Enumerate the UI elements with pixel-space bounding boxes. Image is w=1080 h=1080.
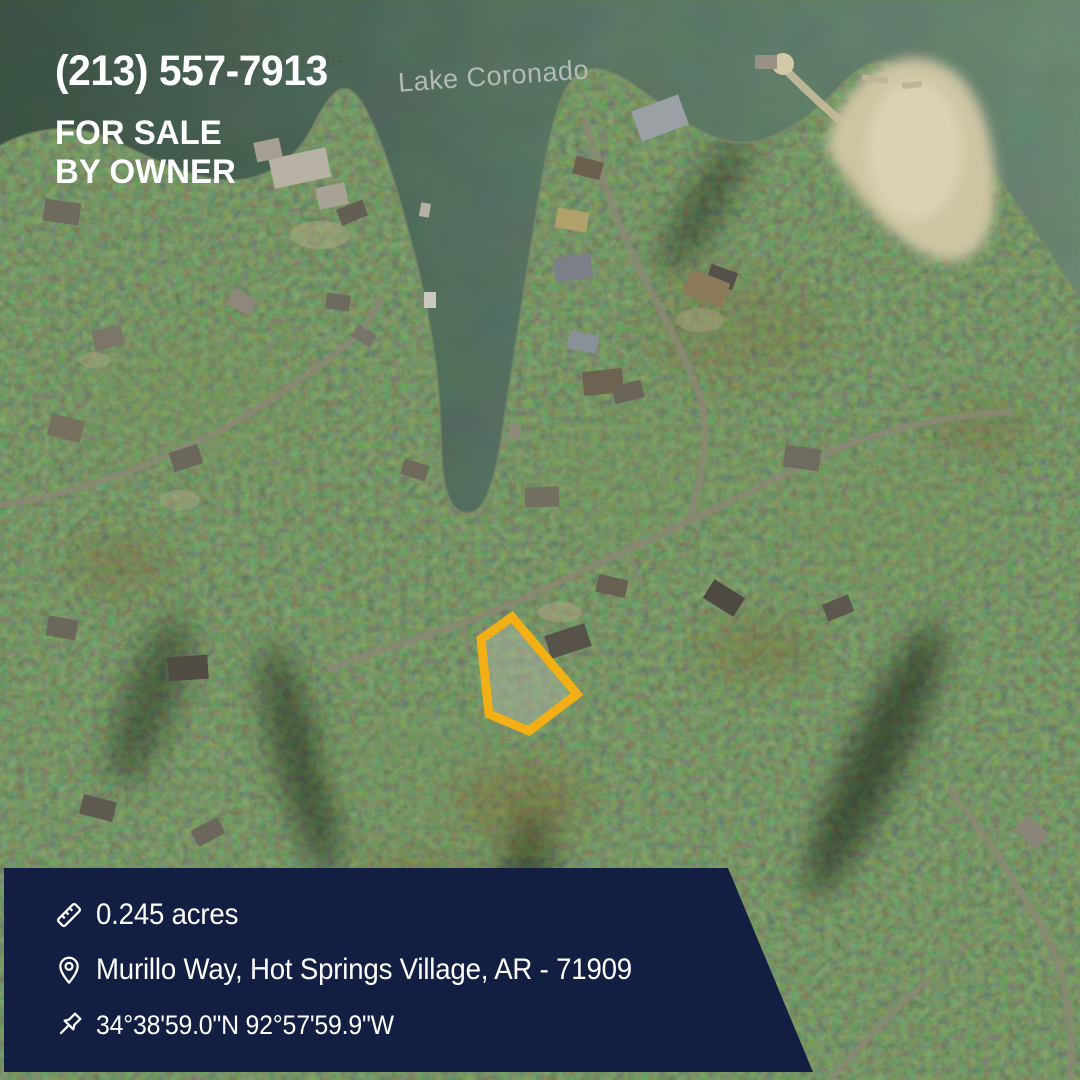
- listing-image: © 2022 Google Lake Coronado (213) 557-79…: [0, 0, 1080, 1080]
- location-pin-icon: [52, 953, 86, 987]
- ruler-icon: [52, 898, 86, 932]
- acreage-row: 0.245 acres: [52, 898, 816, 932]
- address-value: Murillo Way, Hot Springs Village, AR - 7…: [96, 953, 632, 987]
- info-panel: 0.245 acres Murillo Way, Hot Springs Vil…: [4, 868, 816, 1072]
- acreage-value: 0.245 acres: [96, 898, 238, 932]
- for-sale-line2: BY OWNER: [55, 153, 333, 192]
- coordinates-row: 34°38'59.0"N 92°57'59.9"W: [52, 1008, 816, 1042]
- coordinates-value: 34°38'59.0"N 92°57'59.9"W: [96, 1010, 394, 1041]
- phone-number: (213) 557-7913: [55, 48, 328, 94]
- for-sale-text: FOR SALE BY OWNER: [55, 114, 333, 192]
- for-sale-line1: FOR SALE: [55, 114, 333, 153]
- pushpin-icon: [52, 1008, 86, 1042]
- address-row: Murillo Way, Hot Springs Village, AR - 7…: [52, 953, 816, 987]
- header-overlay: (213) 557-7913 FOR SALE BY OWNER: [55, 48, 342, 192]
